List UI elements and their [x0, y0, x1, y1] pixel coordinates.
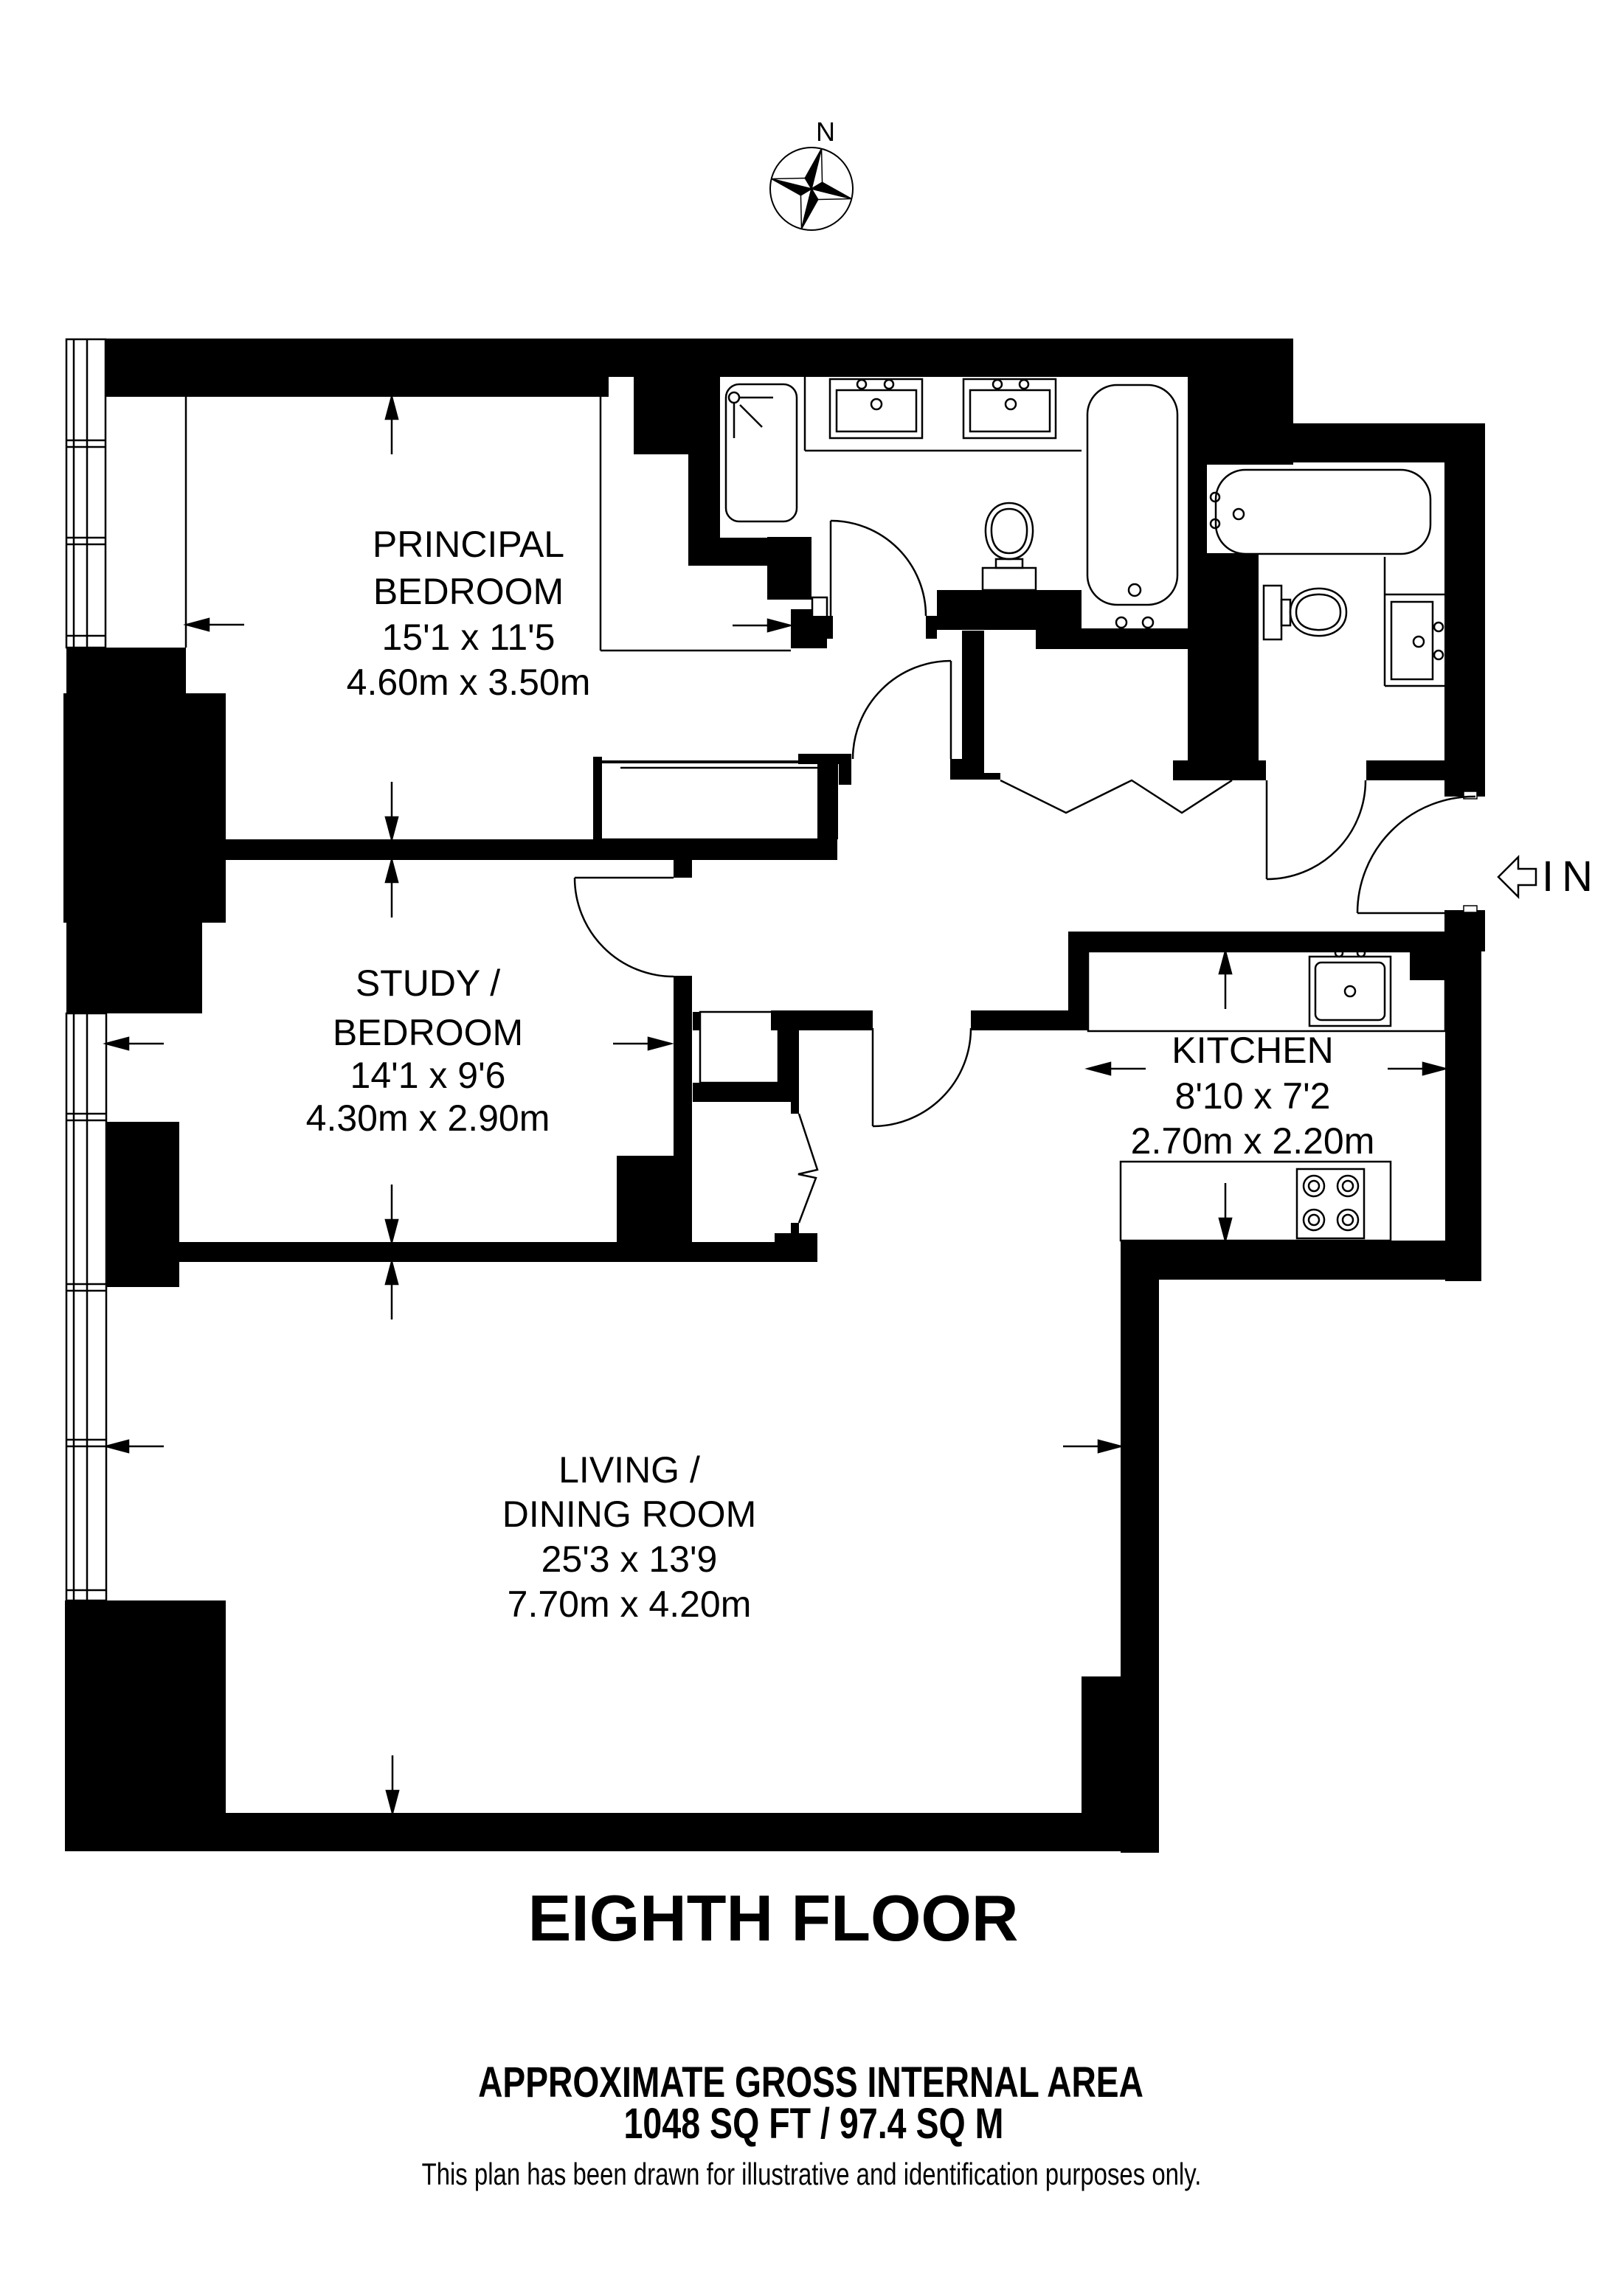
svg-text:PRINCIPAL: PRINCIPAL	[373, 524, 564, 565]
svg-text:This plan has been drawn for i: This plan has been drawn for illustrativ…	[422, 2157, 1202, 2191]
svg-text:25'3 x 13'9: 25'3 x 13'9	[541, 1539, 718, 1580]
svg-text:4.60m x 3.50m: 4.60m x 3.50m	[347, 662, 591, 703]
svg-text:BEDROOM: BEDROOM	[333, 1012, 523, 1053]
svg-text:BEDROOM: BEDROOM	[373, 571, 564, 612]
svg-text:14'1 x 9'6: 14'1 x 9'6	[350, 1055, 506, 1096]
svg-text:EIGHTH FLOOR: EIGHTH FLOOR	[528, 1881, 1019, 1955]
svg-text:IN: IN	[1542, 853, 1601, 901]
svg-text:15'1 x 11'5: 15'1 x 11'5	[381, 617, 555, 658]
svg-text:LIVING /: LIVING /	[558, 1449, 700, 1491]
svg-text:2.70m x 2.20m: 2.70m x 2.20m	[1131, 1120, 1375, 1162]
svg-text:7.70m x 4.20m: 7.70m x 4.20m	[508, 1584, 752, 1625]
svg-text:STUDY /: STUDY /	[356, 963, 500, 1004]
svg-text:N: N	[816, 117, 835, 147]
svg-text:1048 SQ FT / 97.4 SQ M: 1048 SQ FT / 97.4 SQ M	[624, 2100, 1004, 2148]
svg-text:8'10 x 7'2: 8'10 x 7'2	[1175, 1075, 1331, 1117]
svg-text:DINING ROOM: DINING ROOM	[502, 1494, 756, 1535]
svg-text:4.30m x 2.90m: 4.30m x 2.90m	[306, 1097, 550, 1139]
svg-text:KITCHEN: KITCHEN	[1172, 1030, 1333, 1071]
